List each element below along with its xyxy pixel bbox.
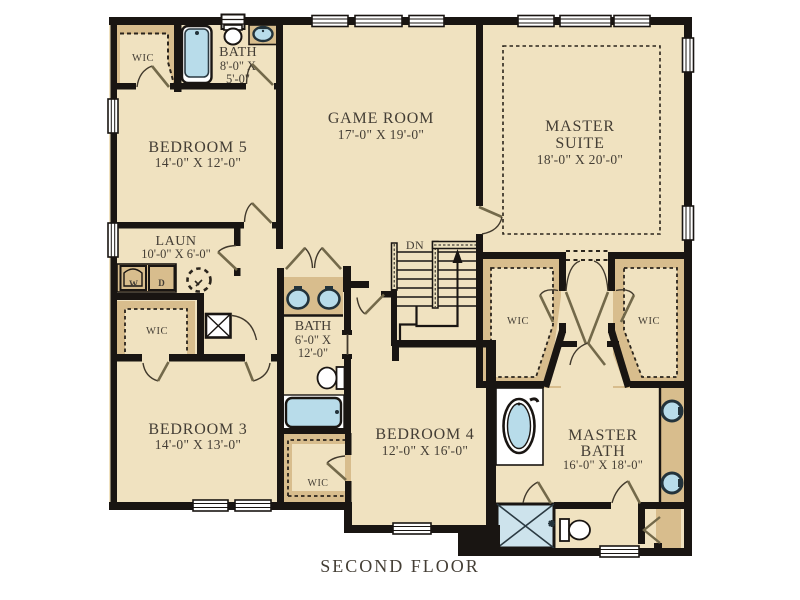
svg-text:BATH: BATH [219,45,257,60]
svg-text:BATH: BATH [295,319,332,334]
svg-text:14'-0" X 12'-0": 14'-0" X 12'-0" [155,155,241,170]
svg-text:6'-0" X: 6'-0" X [295,333,331,347]
svg-text:WIC: WIC [132,53,154,64]
svg-text:MASTER: MASTER [568,427,638,444]
svg-text:WIC: WIC [146,326,168,337]
svg-text:17'-0" X 19'-0": 17'-0" X 19'-0" [338,127,424,142]
svg-text:WIC: WIC [507,316,529,327]
svg-text:BEDROOM 3: BEDROOM 3 [148,421,247,438]
svg-text:MASTER: MASTER [545,118,615,135]
svg-text:GAME ROOM: GAME ROOM [328,110,434,127]
svg-text:WIC: WIC [308,478,329,489]
svg-text:D: D [158,278,165,288]
svg-text:12'-0" X 16'-0": 12'-0" X 16'-0" [382,443,468,458]
svg-text:14'-0" X 13'-0": 14'-0" X 13'-0" [155,437,241,452]
svg-text:WIC: WIC [638,316,660,327]
svg-text:SUITE: SUITE [555,135,604,152]
svg-text:10'-0" X 6'-0": 10'-0" X 6'-0" [141,247,211,261]
svg-text:12'-0": 12'-0" [298,346,328,360]
svg-text:SECOND FLOOR: SECOND FLOOR [320,556,480,576]
svg-text:BEDROOM 5: BEDROOM 5 [148,139,247,156]
svg-text:BEDROOM 4: BEDROOM 4 [375,426,474,443]
svg-text:W: W [129,279,138,289]
svg-text:16'-0" X 18'-0": 16'-0" X 18'-0" [563,458,643,472]
svg-text:18'-0" X 20'-0": 18'-0" X 20'-0" [537,152,623,167]
svg-text:DN: DN [406,238,424,252]
